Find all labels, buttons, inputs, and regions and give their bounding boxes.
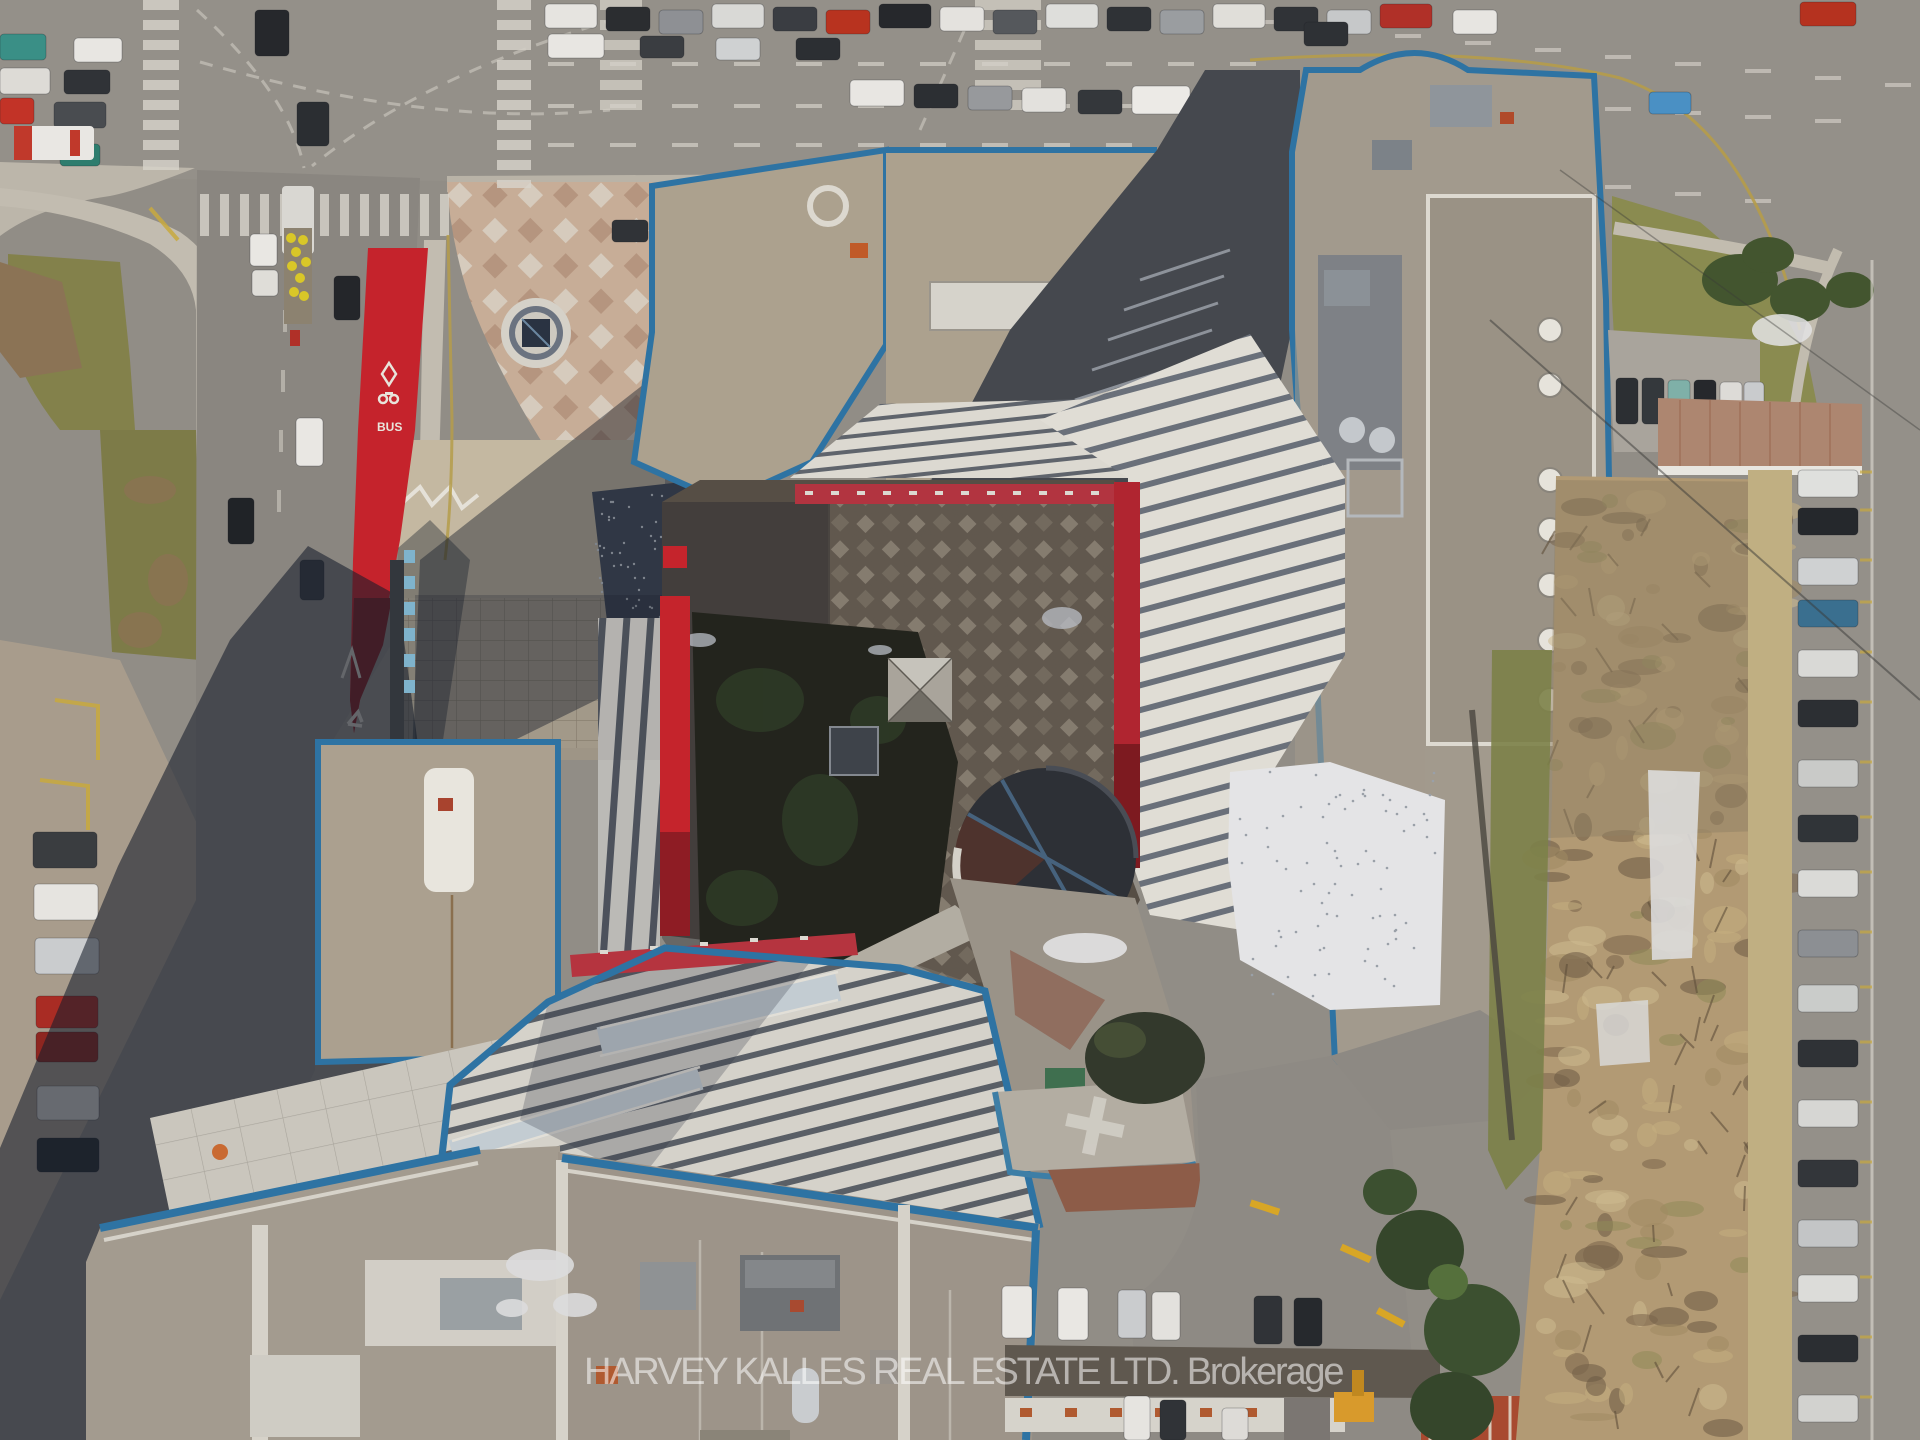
svg-text:HARVEY KALLES REAL ESTATE LTD.: HARVEY KALLES REAL ESTATE LTD. Brokerage xyxy=(584,1351,1346,1393)
svg-text:BUS: BUS xyxy=(377,420,402,434)
